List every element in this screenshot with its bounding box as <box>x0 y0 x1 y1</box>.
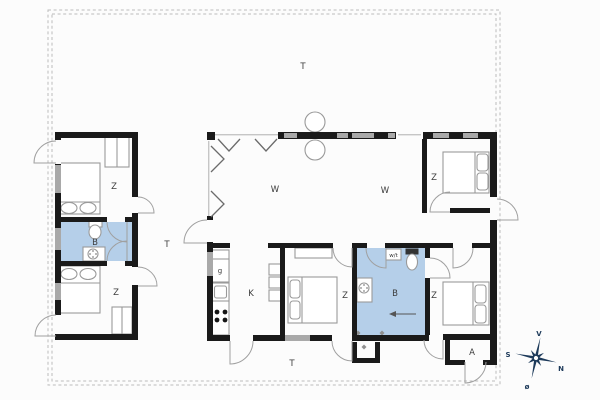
room-label-bedroom-bottom-left: Z <box>113 288 119 298</box>
double-bed <box>60 266 100 313</box>
folding-door-symbols <box>211 139 277 217</box>
toilet <box>406 249 418 270</box>
closet <box>295 248 332 258</box>
floor-plan: T T T W W K Z Z Z Z Z B B g w/t A V S N … <box>0 0 600 400</box>
compass-letter-west: V <box>536 330 542 338</box>
door-swing <box>230 341 253 364</box>
door-swing <box>184 220 207 243</box>
shower <box>83 247 105 261</box>
door-swing <box>35 315 56 336</box>
double-bed <box>443 152 489 193</box>
wardrobe <box>105 133 129 167</box>
door-swing <box>424 340 443 359</box>
door-swing <box>138 197 154 213</box>
double-bed <box>60 163 100 214</box>
room-label-bathroom-left: B <box>92 238 98 248</box>
door-swing <box>453 248 473 268</box>
compass-letter-north: N <box>558 365 564 373</box>
double-bed <box>288 277 337 323</box>
kitchen-counter <box>212 250 229 335</box>
room-label-bedroom-bottom-right: Z <box>431 291 437 301</box>
wardrobe <box>112 307 132 334</box>
glass-wall <box>215 134 278 135</box>
appliance-label-g: g <box>218 267 222 275</box>
round-fireplace-outside <box>305 112 325 132</box>
room-label-living-right: W <box>381 186 390 196</box>
door-swing <box>430 258 450 278</box>
kitchen-shelves <box>269 264 281 301</box>
room-label-kitchen: K <box>248 289 254 299</box>
room-label-annex: A <box>469 348 475 358</box>
washer-dryer-label: w/t <box>389 253 398 259</box>
door-swing <box>430 192 450 212</box>
compass-letter-south: S <box>505 351 510 359</box>
compass-rose: V S N ø <box>505 330 564 391</box>
round-fireplace-inside <box>305 140 325 160</box>
room-label-bedroom-top-left: Z <box>111 182 117 192</box>
kitchen-sink <box>212 283 229 301</box>
door-swing <box>465 362 486 383</box>
room-label-bedroom-top-right: Z <box>431 173 437 183</box>
room-label-terrace-bottom: T <box>288 359 295 369</box>
door-swing <box>138 267 157 286</box>
room-label-bathroom-right: B <box>392 289 398 299</box>
compass-letter-east: ø <box>525 383 530 391</box>
room-label-terrace-left: T <box>163 240 170 250</box>
toilet <box>89 221 102 239</box>
room-label-bedroom-middle: Z <box>342 291 348 301</box>
floor-plan-page: T T T W W K Z Z Z Z Z B B g w/t A V S N … <box>0 0 600 400</box>
door-swing <box>333 248 352 267</box>
door-swing <box>34 141 56 163</box>
double-bed <box>443 282 489 325</box>
glass-wall <box>208 141 209 216</box>
shower <box>357 278 372 302</box>
room-label-living-left: W <box>271 185 280 195</box>
glass-door <box>398 134 421 135</box>
room-label-terrace-top: T <box>299 62 306 72</box>
door-swing <box>332 341 352 361</box>
